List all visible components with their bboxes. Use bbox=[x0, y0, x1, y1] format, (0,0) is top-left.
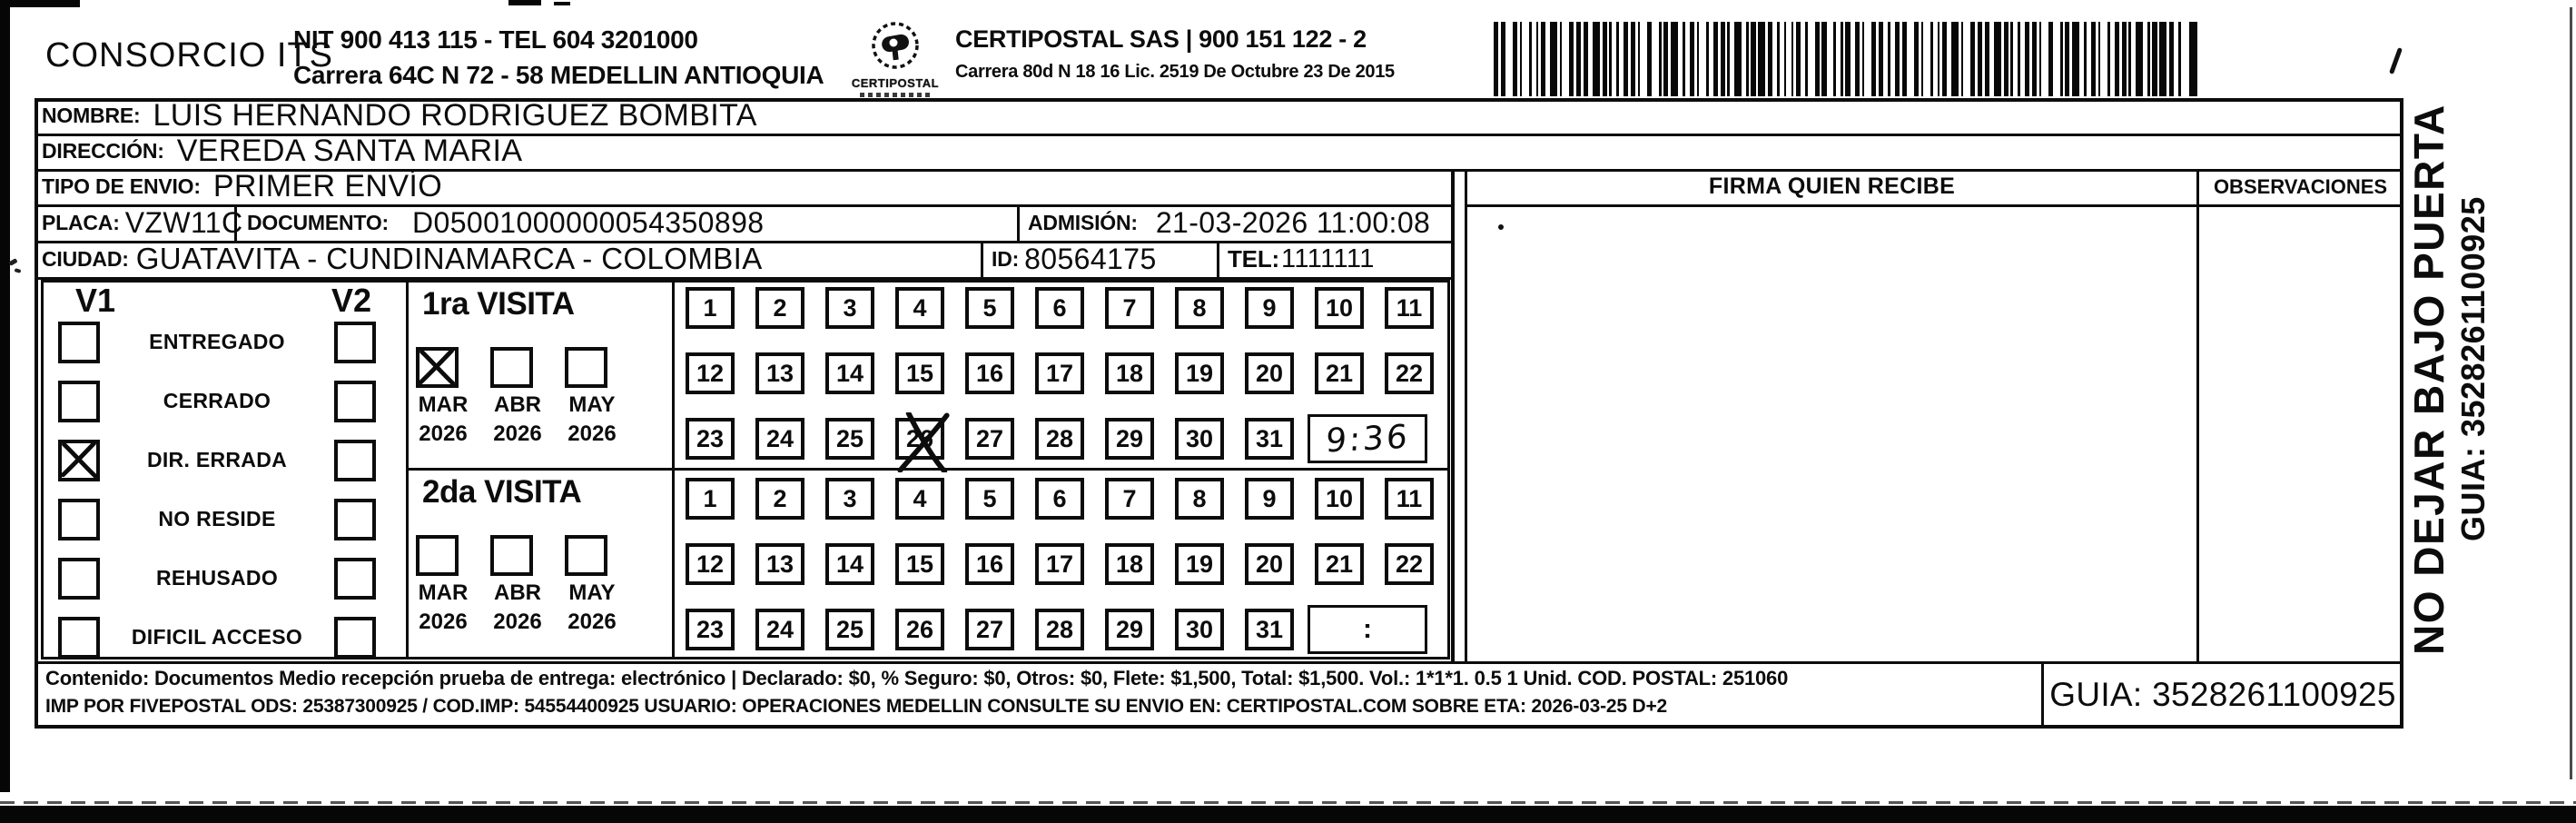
visit2-day-21: 21 bbox=[1315, 543, 1364, 585]
visit2-day-24: 24 bbox=[755, 609, 804, 650]
day-number: 17 bbox=[1046, 360, 1073, 388]
divider bbox=[1217, 241, 1219, 277]
day-number: 23 bbox=[696, 616, 724, 644]
operator-name-line: CERTIPOSTAL SAS | 900 151 122 - 2 bbox=[955, 25, 1395, 54]
operator-address-line: Carrera 80d N 18 16 Lic. 2519 De Octubre… bbox=[955, 62, 1395, 83]
day-number: 18 bbox=[1116, 360, 1143, 388]
visit1-day-2: 2 bbox=[755, 287, 804, 329]
visit1-day-31: 31 bbox=[1245, 418, 1294, 460]
visit2-day-16: 16 bbox=[965, 543, 1014, 585]
day-number: 8 bbox=[1192, 485, 1206, 513]
scan-edge-left bbox=[0, 0, 10, 792]
documento-value: D05001000000054350898 bbox=[412, 206, 764, 240]
day-number: 6 bbox=[1052, 294, 1066, 322]
visit1-day-23: 23 bbox=[686, 418, 735, 460]
visit2-day-15: 15 bbox=[895, 543, 944, 585]
divider bbox=[2196, 169, 2199, 661]
tracking-barcode bbox=[1494, 22, 2200, 96]
day-number: 27 bbox=[976, 616, 1003, 644]
scan-speckle bbox=[15, 268, 22, 273]
visit1-day-28: 28 bbox=[1035, 418, 1084, 460]
visit1-day-5: 5 bbox=[965, 287, 1014, 329]
visit1-day-22: 22 bbox=[1385, 352, 1434, 394]
day-number: 19 bbox=[1186, 360, 1213, 388]
guia-number-box: GUIA: 3528261100925 bbox=[2044, 664, 2402, 725]
tipo-envio-value: PRIMER ENVÍO bbox=[213, 169, 442, 204]
visit2-day-5: 5 bbox=[965, 478, 1014, 520]
shipping-label-scan: CONSORCIO ITS NIT 900 413 115 - TEL 604 … bbox=[0, 0, 2576, 823]
tipo-envio-label: TIPO DE ENVIO: bbox=[42, 174, 201, 199]
visit1-day-9: 9 bbox=[1245, 287, 1294, 329]
day-number: 18 bbox=[1116, 550, 1143, 579]
visit2-day-31: 31 bbox=[1245, 609, 1294, 650]
company-address-line: Carrera 64C N 72 - 58 MEDELLIN ANTIOQUIA bbox=[293, 57, 824, 93]
side-warning-text: NO DEJAR BAJO PUERTA bbox=[2404, 107, 2453, 652]
day-number: 4 bbox=[913, 294, 926, 322]
visit1-day-12: 12 bbox=[686, 352, 735, 394]
day-number: 22 bbox=[1396, 550, 1423, 579]
scan-edge-right bbox=[2570, 7, 2572, 779]
day-number: 12 bbox=[696, 550, 724, 579]
day-number: 24 bbox=[766, 425, 794, 453]
field-documento: DOCUMENTO: D05001000000054350898 bbox=[247, 204, 764, 241]
visit1-day-20: 20 bbox=[1245, 352, 1294, 394]
visit2-day-4: 4 bbox=[895, 478, 944, 520]
visit2-year-labels: 202620262026 bbox=[406, 610, 629, 635]
visit1-day-24: 24 bbox=[755, 418, 804, 460]
day-number: 11 bbox=[1397, 294, 1423, 322]
visit1-year-labels: 202620262026 bbox=[406, 421, 629, 447]
content-declaration-line: Contenido: Documentos Medio recepción pr… bbox=[45, 667, 1788, 690]
divider bbox=[981, 241, 983, 277]
visit2-day-10: 10 bbox=[1315, 478, 1364, 520]
visit1-day-25: 25 bbox=[825, 418, 874, 460]
visit2-day-25: 25 bbox=[825, 609, 874, 650]
month-label: MAR bbox=[406, 392, 480, 418]
day-number: 20 bbox=[1256, 360, 1283, 388]
visit1-day-17: 17 bbox=[1035, 352, 1084, 394]
crossed-day-x-mark bbox=[892, 412, 955, 472]
visit1-day-4: 4 bbox=[895, 287, 944, 329]
visit2-day-30: 30 bbox=[1175, 609, 1224, 650]
divider bbox=[1465, 169, 1467, 661]
observaciones-column-header: OBSERVACIONES bbox=[2199, 169, 2402, 204]
day-number: 10 bbox=[1326, 485, 1353, 513]
certipostal-logo-icon bbox=[870, 20, 921, 71]
visit1-time-box: 9:36 bbox=[1308, 414, 1427, 463]
tel-value: 1111111 bbox=[1281, 244, 1375, 274]
day-number: 19 bbox=[1186, 550, 1213, 579]
day-number: 1 bbox=[703, 485, 716, 513]
visit2-title: 2da VISITA bbox=[422, 474, 581, 511]
placa-label: PLACA: bbox=[42, 211, 120, 235]
day-number: 16 bbox=[976, 550, 1003, 579]
scan-speckle bbox=[2389, 47, 2403, 74]
visit2-day-23: 23 bbox=[686, 609, 735, 650]
month-label: MAR bbox=[406, 580, 480, 606]
day-number: 13 bbox=[766, 550, 794, 579]
ciudad-value: GUATAVITA - CUNDINAMARCA - COLOMBIA bbox=[136, 242, 763, 276]
visit1-day-1: 1 bbox=[686, 287, 735, 329]
visit2-day-28: 28 bbox=[1035, 609, 1084, 650]
visit2-time-box: : bbox=[1308, 605, 1427, 654]
visit1-month-labels: MARABRMAY bbox=[406, 392, 629, 418]
field-direccion: DIRECCIÓN: VEREDA SANTA MARIA bbox=[42, 134, 522, 169]
year-label: 2026 bbox=[480, 610, 555, 635]
divider bbox=[1451, 169, 1455, 661]
year-label: 2026 bbox=[555, 421, 629, 447]
day-number: 2 bbox=[773, 485, 786, 513]
day-number: 25 bbox=[836, 425, 864, 453]
field-id: ID: 80564175 bbox=[992, 241, 1157, 277]
visit1-day-8: 8 bbox=[1175, 287, 1224, 329]
visit2-day-22: 22 bbox=[1385, 543, 1434, 585]
visit2-day-2: 2 bbox=[755, 478, 804, 520]
day-number: 5 bbox=[982, 485, 996, 513]
day-number: 14 bbox=[836, 360, 864, 388]
month-label: ABR bbox=[480, 392, 555, 418]
visit1-month-checkbox-may bbox=[565, 347, 607, 388]
day-number: 2 bbox=[773, 294, 786, 322]
day-number: 16 bbox=[976, 360, 1003, 388]
nombre-value: LUIS HERNANDO RODRIGUEZ BOMBITA bbox=[153, 98, 756, 134]
visit2-day-26: 26 bbox=[895, 609, 944, 650]
day-number: 9 bbox=[1262, 294, 1276, 322]
visit2-month-checkbox-abr bbox=[490, 535, 533, 576]
visit2-day-18: 18 bbox=[1105, 543, 1154, 585]
visit1-day-18: 18 bbox=[1105, 352, 1154, 394]
logo-wordmark: CERTIPOSTAL bbox=[841, 76, 950, 90]
day-number: 10 bbox=[1326, 294, 1353, 322]
day-number: 3 bbox=[843, 485, 856, 513]
visit2-month-labels: MARABRMAY bbox=[406, 580, 629, 606]
visit1-day-6: 6 bbox=[1035, 287, 1084, 329]
day-number: 9 bbox=[1262, 485, 1276, 513]
visit1-month-checkboxes bbox=[416, 347, 607, 388]
day-number: 17 bbox=[1046, 550, 1073, 579]
day-number: 5 bbox=[982, 294, 996, 322]
visit1-day-grid: 1234567891011121314151617181920212223242… bbox=[686, 287, 1450, 469]
field-admision: ADMISIÓN: 21-03-2026 11:00:08 bbox=[1028, 204, 1430, 241]
day-number: 31 bbox=[1256, 425, 1283, 453]
month-label: MAY bbox=[555, 392, 629, 418]
day-number: 20 bbox=[1256, 550, 1283, 579]
divider bbox=[1465, 204, 2402, 207]
divider bbox=[1017, 204, 1020, 241]
month-label: MAY bbox=[555, 580, 629, 606]
visit1-day-14: 14 bbox=[825, 352, 874, 394]
year-label: 2026 bbox=[406, 610, 480, 635]
day-number: 25 bbox=[836, 616, 864, 644]
visit1-day-15: 15 bbox=[895, 352, 944, 394]
admision-label: ADMISIÓN: bbox=[1028, 211, 1138, 235]
day-number: 15 bbox=[906, 360, 933, 388]
visit2-day-12: 12 bbox=[686, 543, 735, 585]
visit2-day-8: 8 bbox=[1175, 478, 1224, 520]
certipostal-logo: CERTIPOSTAL bbox=[841, 20, 950, 97]
day-number: 8 bbox=[1192, 294, 1206, 322]
year-label: 2026 bbox=[406, 421, 480, 447]
admision-value: 21-03-2026 11:00:08 bbox=[1156, 206, 1430, 240]
visit1-month-checkbox-abr bbox=[490, 347, 533, 388]
visit1-day-13: 13 bbox=[755, 352, 804, 394]
visit1-day-30: 30 bbox=[1175, 418, 1224, 460]
visit1-title: 1ra VISITA bbox=[422, 286, 574, 322]
visit1-day-27: 27 bbox=[965, 418, 1014, 460]
id-value: 80564175 bbox=[1024, 243, 1157, 276]
day-number: 21 bbox=[1326, 550, 1353, 579]
day-number: 26 bbox=[906, 616, 933, 644]
day-number: 14 bbox=[836, 550, 864, 579]
handwritten-time: 9:36 bbox=[1325, 418, 1411, 460]
side-guia-text: GUIA: 3528261100925 bbox=[2452, 169, 2495, 569]
day-number: 28 bbox=[1046, 425, 1073, 453]
logo-tagline-smudge bbox=[860, 93, 931, 97]
field-nombre: NOMBRE: LUIS HERNANDO RODRIGUEZ BOMBITA bbox=[42, 98, 757, 134]
visit2-day-29: 29 bbox=[1105, 609, 1154, 650]
visit1-day-3: 3 bbox=[825, 287, 874, 329]
day-number: 27 bbox=[976, 425, 1003, 453]
visit2-day-6: 6 bbox=[1035, 478, 1084, 520]
day-number: 6 bbox=[1052, 485, 1066, 513]
tel-label: TEL: bbox=[1228, 245, 1279, 273]
visit2-day-9: 9 bbox=[1245, 478, 1294, 520]
field-tipo-envio: TIPO DE ENVIO: PRIMER ENVÍO bbox=[42, 169, 442, 204]
visit1-day-7: 7 bbox=[1105, 287, 1154, 329]
day-number: 11 bbox=[1397, 485, 1423, 513]
visit2-day-3: 3 bbox=[825, 478, 874, 520]
operator-block: CERTIPOSTAL SAS | 900 151 122 - 2 Carrer… bbox=[955, 25, 1395, 83]
day-number: 29 bbox=[1116, 425, 1143, 453]
visit2-month-checkbox-mar bbox=[416, 535, 459, 576]
year-label: 2026 bbox=[480, 421, 555, 447]
day-number: 13 bbox=[766, 360, 794, 388]
visit2-day-20: 20 bbox=[1245, 543, 1294, 585]
nombre-label: NOMBRE: bbox=[42, 104, 140, 128]
day-number: 28 bbox=[1046, 616, 1073, 644]
visit2-day-grid: 1234567891011121314151617181920212223242… bbox=[686, 478, 1450, 659]
company-name: CONSORCIO ITS bbox=[45, 36, 333, 75]
day-number: 7 bbox=[1122, 294, 1136, 322]
ciudad-label: CIUDAD: bbox=[42, 247, 129, 272]
documento-label: DOCUMENTO: bbox=[247, 211, 389, 235]
visit1-day-10: 10 bbox=[1315, 287, 1364, 329]
day-number: 29 bbox=[1116, 616, 1143, 644]
company-contact-block: NIT 900 413 115 - TEL 604 3201000 Carrer… bbox=[293, 22, 824, 93]
visit2-month-checkbox-may bbox=[565, 535, 607, 576]
imp-tracking-line: IMP POR FIVEPOSTAL ODS: 25387300925 / CO… bbox=[45, 696, 1667, 718]
placa-value: VZW11C bbox=[125, 206, 243, 240]
day-number: 1 bbox=[703, 294, 716, 322]
direccion-label: DIRECCIÓN: bbox=[42, 139, 164, 164]
day-number: 24 bbox=[766, 616, 794, 644]
visit2-day-7: 7 bbox=[1105, 478, 1154, 520]
visit2-month-checkboxes bbox=[416, 535, 607, 576]
day-number: 30 bbox=[1186, 425, 1213, 453]
field-ciudad: CIUDAD: GUATAVITA - CUNDINAMARCA - COLOM… bbox=[42, 241, 763, 277]
time-colon-placeholder: : bbox=[1363, 614, 1372, 645]
day-number: 7 bbox=[1122, 485, 1136, 513]
visit1-month-panel: 1ra VISITA MARABRMAY 202620262026 bbox=[406, 280, 672, 468]
day-number: 3 bbox=[843, 294, 856, 322]
year-label: 2026 bbox=[555, 610, 629, 635]
day-number: 21 bbox=[1326, 360, 1353, 388]
visit1-day-19: 19 bbox=[1175, 352, 1224, 394]
company-nit-line: NIT 900 413 115 - TEL 604 3201000 bbox=[293, 22, 824, 57]
day-number: 23 bbox=[696, 425, 724, 453]
day-number: 12 bbox=[696, 360, 724, 388]
day-number: 22 bbox=[1396, 360, 1423, 388]
scan-mark-top bbox=[554, 2, 570, 5]
id-label: ID: bbox=[992, 247, 1019, 272]
day-number: 15 bbox=[906, 550, 933, 579]
visit2-day-27: 27 bbox=[965, 609, 1014, 650]
day-number: 30 bbox=[1186, 616, 1213, 644]
visit2-day-17: 17 bbox=[1035, 543, 1084, 585]
field-tel: TEL: 1111111 bbox=[1228, 241, 1375, 277]
month-label: ABR bbox=[480, 580, 555, 606]
scan-mark-top bbox=[508, 0, 541, 5]
scan-noise-line bbox=[0, 801, 2576, 804]
visit2-day-19: 19 bbox=[1175, 543, 1224, 585]
visit2-day-13: 13 bbox=[755, 543, 804, 585]
visit1-day-11: 11 bbox=[1385, 287, 1434, 329]
day-number: 31 bbox=[1256, 616, 1283, 644]
direccion-value: VEREDA SANTA MARIA bbox=[177, 134, 523, 169]
visit1-day-29: 29 bbox=[1105, 418, 1154, 460]
visit2-day-1: 1 bbox=[686, 478, 735, 520]
firma-column-header: FIRMA QUIEN RECIBE bbox=[1467, 169, 2196, 204]
scan-edge-bottom bbox=[0, 806, 2576, 823]
visit2-day-14: 14 bbox=[825, 543, 874, 585]
field-placa: PLACA: VZW11C bbox=[42, 204, 243, 241]
visit1-day-21: 21 bbox=[1315, 352, 1364, 394]
scan-edge-top-left bbox=[0, 0, 80, 7]
visit1-day-26: 26 bbox=[895, 418, 944, 460]
visit1-month-checkbox-mar bbox=[416, 347, 459, 388]
day-number: 4 bbox=[913, 485, 926, 513]
visit2-day-11: 11 bbox=[1385, 478, 1434, 520]
visit1-day-16: 16 bbox=[965, 352, 1014, 394]
visit2-month-panel: 2da VISITA MARABRMAY 202620262026 bbox=[406, 468, 672, 659]
